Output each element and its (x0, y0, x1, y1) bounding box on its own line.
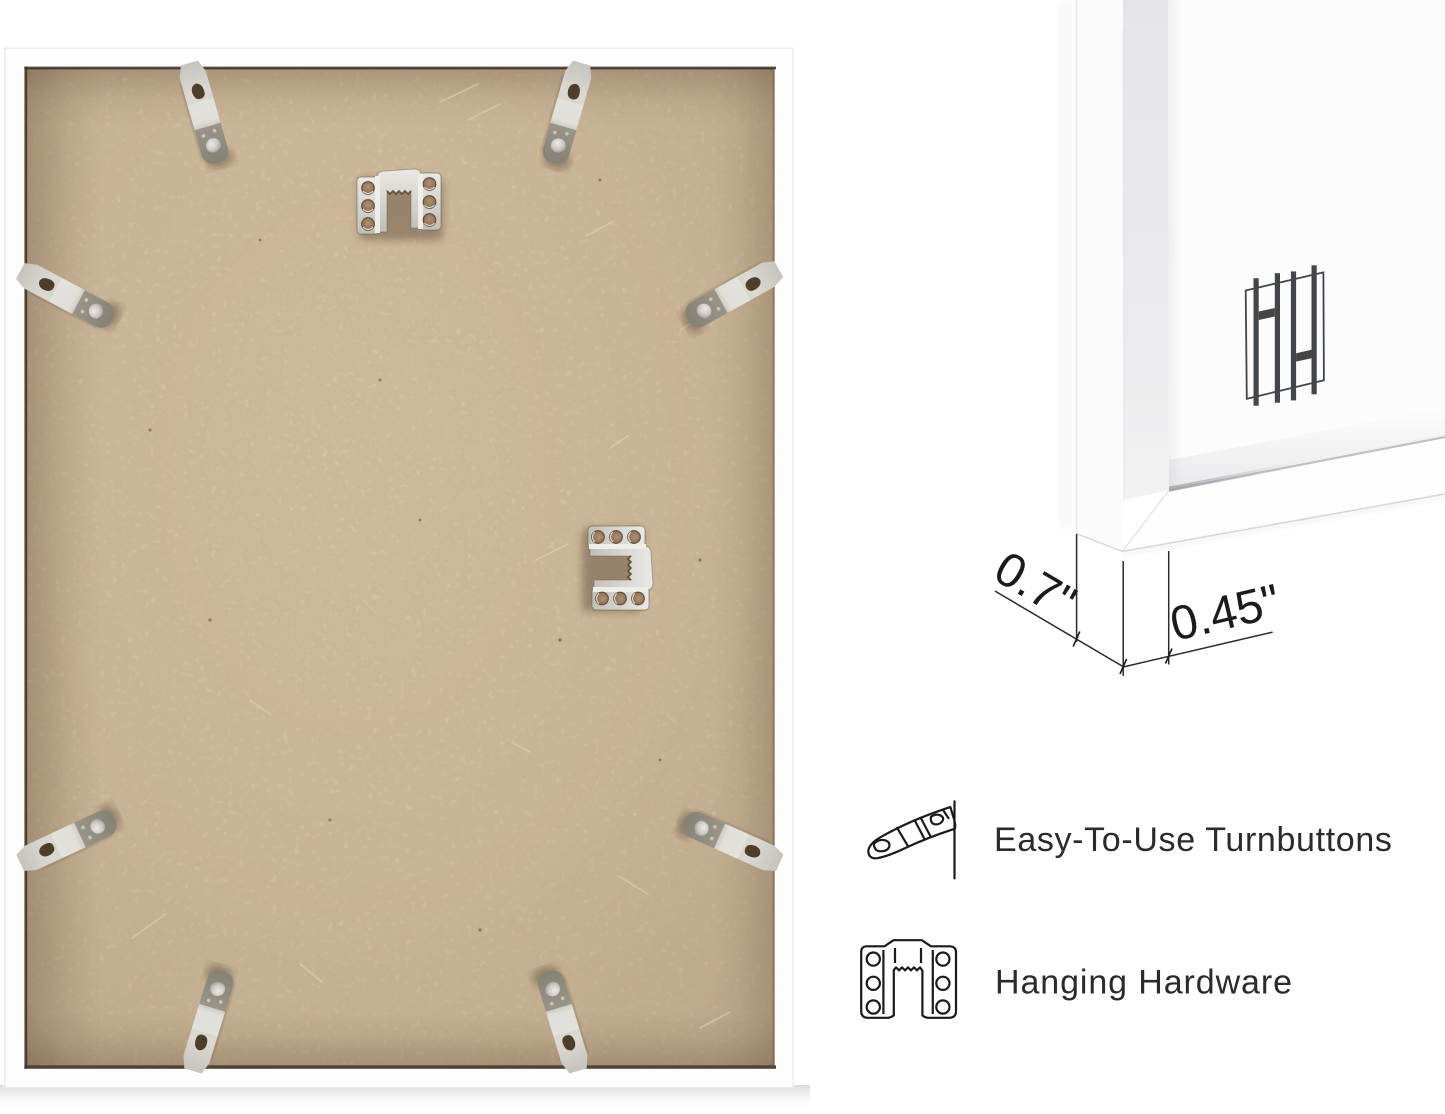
svg-text:0.45": 0.45" (1165, 575, 1285, 652)
svg-text:Easy-To-Use Turnbuttons: Easy-To-Use Turnbuttons (994, 821, 1393, 859)
svg-text:0.7": 0.7" (985, 542, 1084, 630)
svg-text:Hanging Hardware: Hanging Hardware (995, 964, 1293, 1002)
